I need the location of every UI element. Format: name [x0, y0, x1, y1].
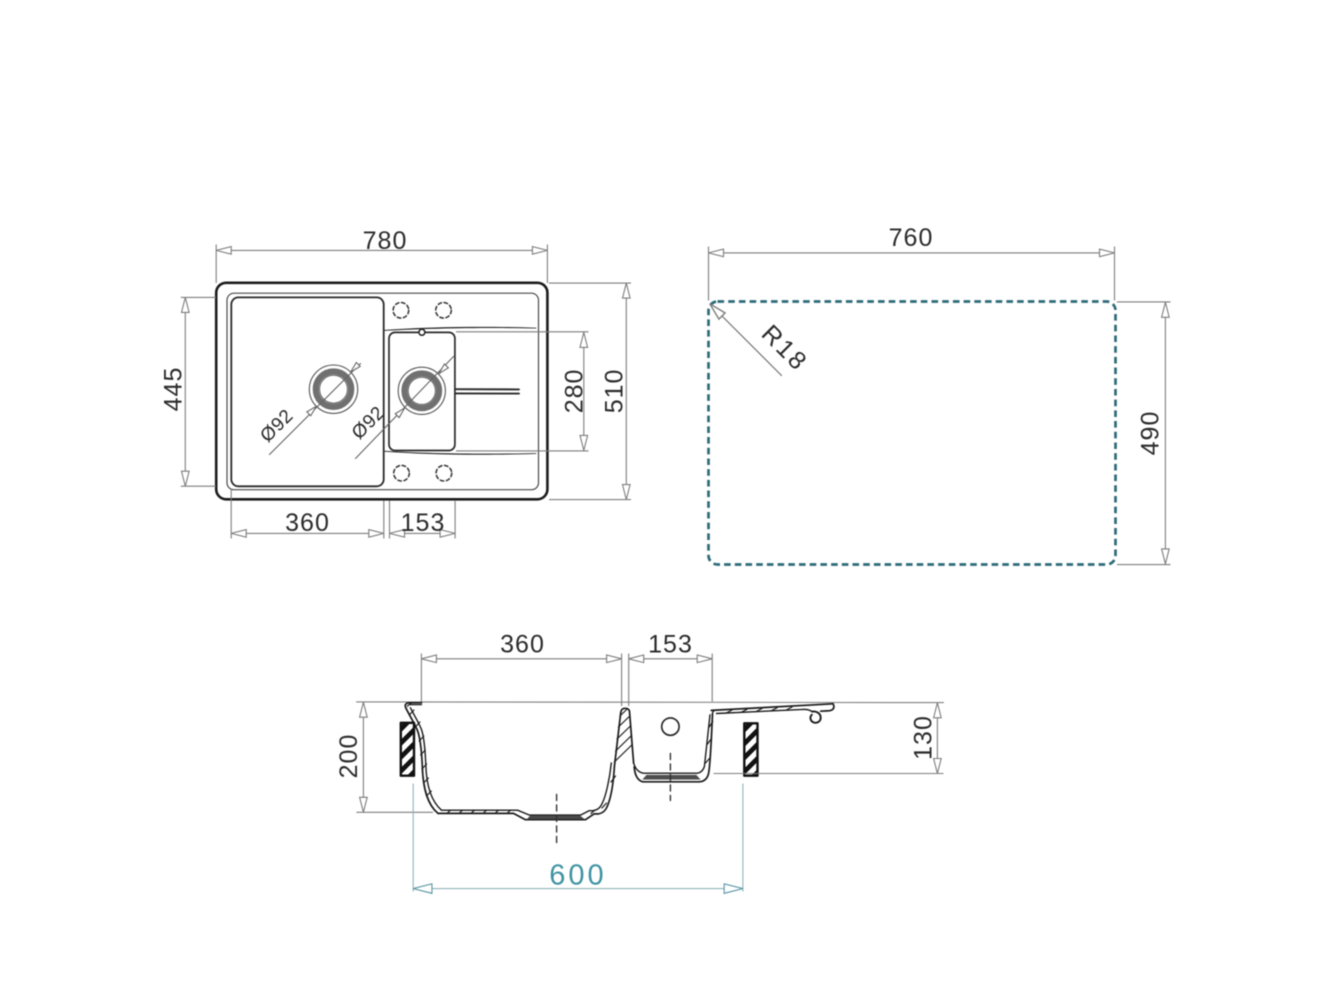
svg-text:200: 200 — [335, 734, 363, 779]
svg-text:780: 780 — [363, 227, 408, 255]
svg-text:510: 510 — [601, 369, 629, 414]
svg-text:130: 130 — [909, 715, 937, 760]
svg-text:153: 153 — [401, 509, 446, 537]
svg-text:490: 490 — [1137, 411, 1165, 456]
svg-text:153: 153 — [648, 631, 693, 659]
svg-text:445: 445 — [160, 367, 188, 412]
svg-text:280: 280 — [560, 369, 588, 414]
svg-text:600: 600 — [549, 860, 606, 892]
svg-text:360: 360 — [285, 509, 330, 537]
svg-text:760: 760 — [889, 224, 934, 252]
svg-text:360: 360 — [500, 631, 545, 659]
